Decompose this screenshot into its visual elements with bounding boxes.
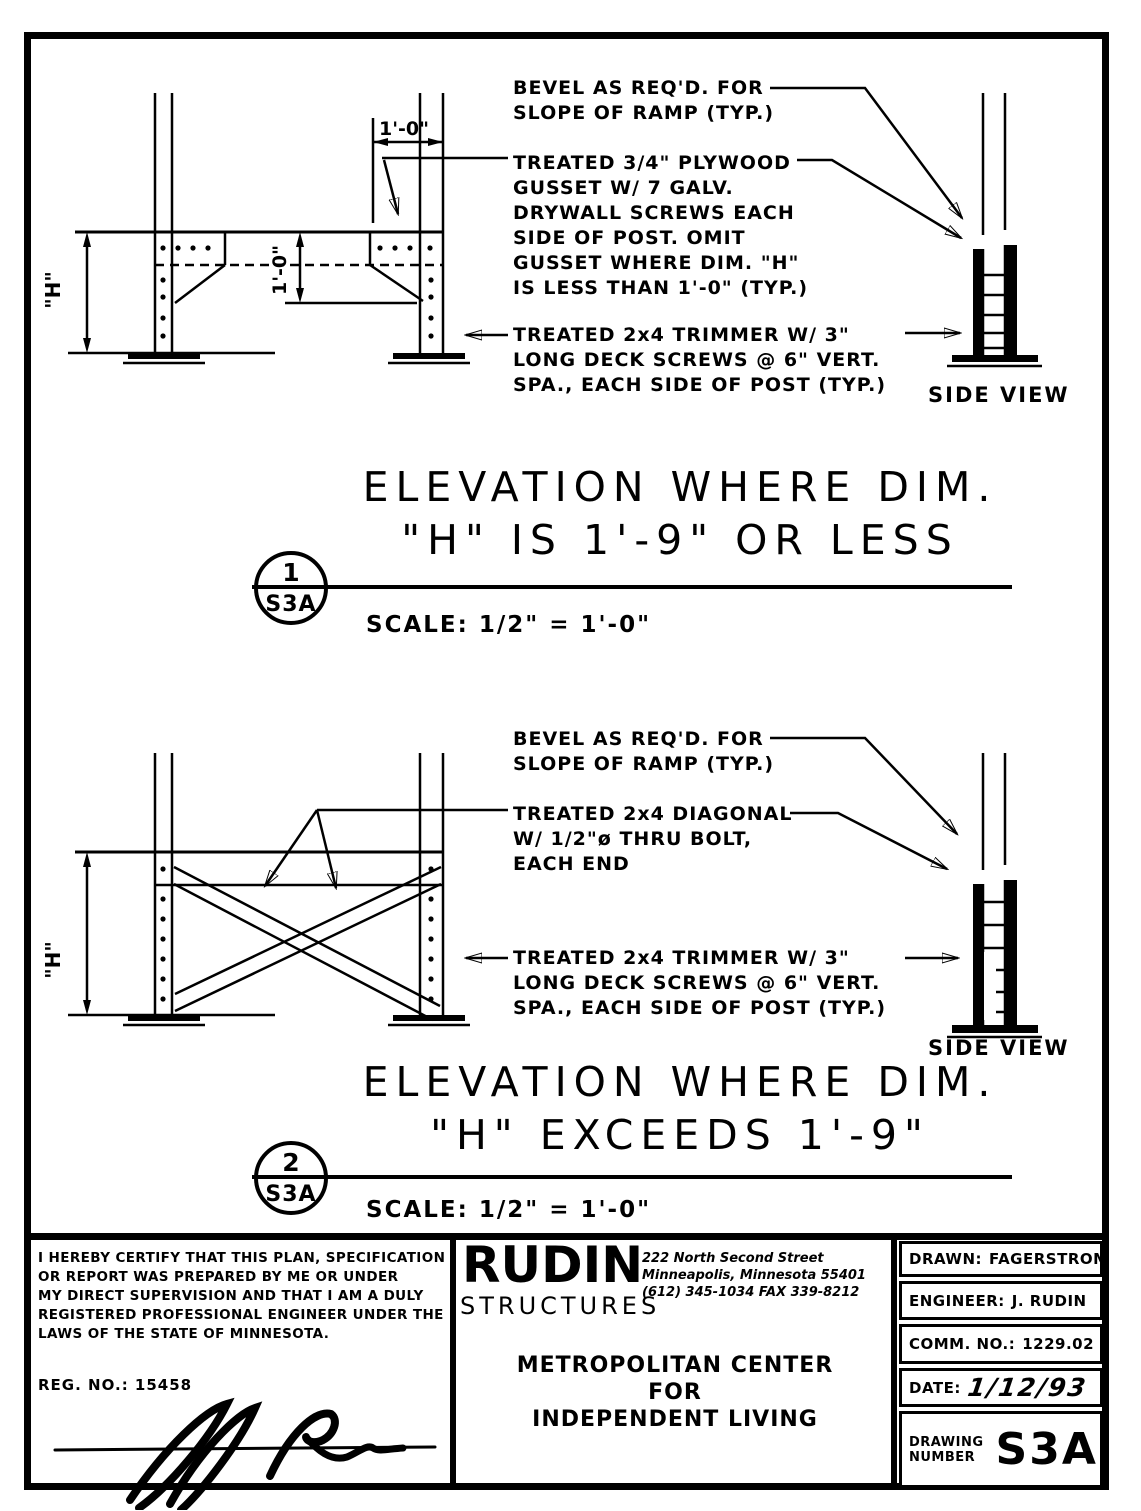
cert-line: I HEREBY CERTIFY THAT THIS PLAN, SPECIFI… xyxy=(38,1249,445,1268)
engineer-label: ENGINEER: xyxy=(909,1292,1005,1310)
note-line: SLOPE OF RAMP (TYP.) xyxy=(513,101,774,126)
comm-no-label: COMM. NO.: xyxy=(909,1335,1015,1353)
detail-sheet: S3A xyxy=(258,592,324,617)
note-line: SIDE OF POST. OMIT xyxy=(513,226,808,251)
field-date: DATE: 1/12/93 xyxy=(899,1368,1103,1407)
note-line: GUSSET WHERE DIM. "H" xyxy=(513,251,808,276)
note-line: BEVEL AS REQ'D. FOR xyxy=(513,727,774,752)
note-line: TREATED 2x4 TRIMMER W/ 3" xyxy=(513,946,886,971)
firm-address: 222 North Second Street Minneapolis, Min… xyxy=(642,1250,866,1301)
drawing-number-label-line: NUMBER xyxy=(909,1450,984,1465)
side-view-label-2: SIDE VIEW xyxy=(928,1036,1070,1060)
cert-line: OR REPORT WAS PREPARED BY ME OR UNDER xyxy=(38,1268,445,1287)
address-line: Minneapolis, Minnesota 55401 xyxy=(642,1267,866,1284)
drawn-value: FAGERSTROM xyxy=(989,1250,1109,1268)
dimension-gusset-width: 1'-0" xyxy=(373,118,443,223)
detail2-title-line2: "H" EXCEEDS 1'-9" xyxy=(330,1111,1030,1159)
note-trimmer-1: TREATED 2x4 TRIMMER W/ 3" LONG DECK SCRE… xyxy=(513,323,886,398)
note-line: DRYWALL SCREWS EACH xyxy=(513,201,808,226)
address-line: (612) 345-1034 FAX 339-8212 xyxy=(642,1284,866,1301)
comm-no-value: 1229.02 xyxy=(1022,1335,1094,1353)
side-view1 xyxy=(947,93,1042,366)
elevation2-posts xyxy=(123,753,470,1025)
note-bevel-2: BEVEL AS REQ'D. FOR SLOPE OF RAMP (TYP.) xyxy=(513,727,774,777)
side-view2 xyxy=(947,753,1042,1037)
elevation1-rail-gussets xyxy=(75,232,443,303)
detail1-title-line1: ELEVATION WHERE DIM. xyxy=(330,463,1030,511)
elevation2-rail-braces xyxy=(75,852,443,1020)
address-line: 222 North Second Street xyxy=(642,1250,866,1267)
note-line: LONG DECK SCREWS @ 6" VERT. xyxy=(513,348,886,373)
detail-sheet: S3A xyxy=(258,1182,324,1207)
certification-text: I HEREBY CERTIFY THAT THIS PLAN, SPECIFI… xyxy=(38,1249,445,1344)
firm-logo-sub: STRUCTURES xyxy=(460,1292,660,1320)
dimension-gusset-height: 1'-0" xyxy=(269,232,304,303)
field-drawing-number: DRAWING NUMBER S3A xyxy=(899,1411,1103,1488)
note-line: SPA., EACH SIDE OF POST (TYP.) xyxy=(513,373,886,398)
drawing-sheet: "H" 1'-0" 1'-0" xyxy=(0,0,1141,1511)
detail-number: 2 xyxy=(258,1148,324,1177)
project-line: FOR xyxy=(455,1379,895,1406)
dim-gusset-height-label: 1'-0" xyxy=(269,245,291,295)
project-line: INDEPENDENT LIVING xyxy=(455,1406,895,1433)
note-line: SLOPE OF RAMP (TYP.) xyxy=(513,752,774,777)
note-line: TREATED 3/4" PLYWOOD xyxy=(513,151,808,176)
dimension-h-1: "H" xyxy=(41,232,275,353)
note-line: SPA., EACH SIDE OF POST (TYP.) xyxy=(513,996,886,1021)
date-value: 1/12/93 xyxy=(966,1373,1089,1402)
firm-logo: RUDIN xyxy=(462,1240,643,1290)
dim-gusset-width-label: 1'-0" xyxy=(379,118,429,140)
detail1-scale: SCALE: 1/2" = 1'-0" xyxy=(366,612,651,638)
note-gusset: TREATED 3/4" PLYWOOD GUSSET W/ 7 GALV. D… xyxy=(513,151,808,301)
dim-h-label-1: "H" xyxy=(41,271,65,309)
note-diagonal: TREATED 2x4 DIAGONAL W/ 1/2"ø THRU BOLT,… xyxy=(513,802,792,877)
detail1-title-line2: "H" IS 1'-9" OR LESS xyxy=(330,516,1030,564)
note-line: TREATED 2x4 DIAGONAL xyxy=(513,802,792,827)
engineer-signature xyxy=(35,1378,475,1510)
project-line: METROPOLITAN CENTER xyxy=(455,1352,895,1379)
engineer-value: J. RUDIN xyxy=(1012,1292,1087,1310)
project-name: METROPOLITAN CENTER FOR INDEPENDENT LIVI… xyxy=(455,1352,895,1433)
detail2-title-line1: ELEVATION WHERE DIM. xyxy=(330,1058,1030,1106)
note-line: EACH END xyxy=(513,852,792,877)
detail2-title-rule xyxy=(252,1175,1012,1179)
drawing-number-label-line: DRAWING xyxy=(909,1435,984,1450)
date-label: DATE: xyxy=(909,1379,961,1397)
note-line: TREATED 2x4 TRIMMER W/ 3" xyxy=(513,323,886,348)
note-line: IS LESS THAN 1'-0" (TYP.) xyxy=(513,276,808,301)
detail2-bubble: 2 S3A xyxy=(254,1141,328,1215)
note-line: W/ 1/2"ø THRU BOLT, xyxy=(513,827,792,852)
cert-line: LAWS OF THE STATE OF MINNESOTA. xyxy=(38,1325,445,1344)
note-line: BEVEL AS REQ'D. FOR xyxy=(513,76,774,101)
side-view-label-1: SIDE VIEW xyxy=(928,383,1070,407)
cert-line: REGISTERED PROFESSIONAL ENGINEER UNDER T… xyxy=(38,1306,445,1325)
field-engineer: ENGINEER: J. RUDIN xyxy=(899,1281,1103,1320)
cert-line: MY DIRECT SUPERVISION AND THAT I AM A DU… xyxy=(38,1287,445,1306)
elevation1-screw-dots xyxy=(160,245,433,338)
dimension-h-2: "H" xyxy=(41,852,275,1015)
field-comm-no: COMM. NO.: 1229.02 xyxy=(899,1324,1103,1364)
field-drawn: DRAWN: FAGERSTROM xyxy=(899,1241,1103,1277)
detail1-title-rule xyxy=(252,585,1012,589)
detail2-scale: SCALE: 1/2" = 1'-0" xyxy=(366,1197,651,1223)
drawing-number-value: S3A xyxy=(996,1424,1098,1475)
detail-number: 1 xyxy=(258,558,324,587)
note-trimmer-2: TREATED 2x4 TRIMMER W/ 3" LONG DECK SCRE… xyxy=(513,946,886,1021)
drawn-label: DRAWN: xyxy=(909,1250,982,1268)
titleblock-fields: DRAWN: FAGERSTROM ENGINEER: J. RUDIN COM… xyxy=(899,1241,1103,1488)
note-bevel-1: BEVEL AS REQ'D. FOR SLOPE OF RAMP (TYP.) xyxy=(513,76,774,126)
drawing-number-label: DRAWING NUMBER xyxy=(909,1435,984,1465)
note-line: LONG DECK SCREWS @ 6" VERT. xyxy=(513,971,886,996)
detail1-bubble: 1 S3A xyxy=(254,551,328,625)
dim-h-label-2: "H" xyxy=(41,941,65,979)
note-line: GUSSET W/ 7 GALV. xyxy=(513,176,808,201)
